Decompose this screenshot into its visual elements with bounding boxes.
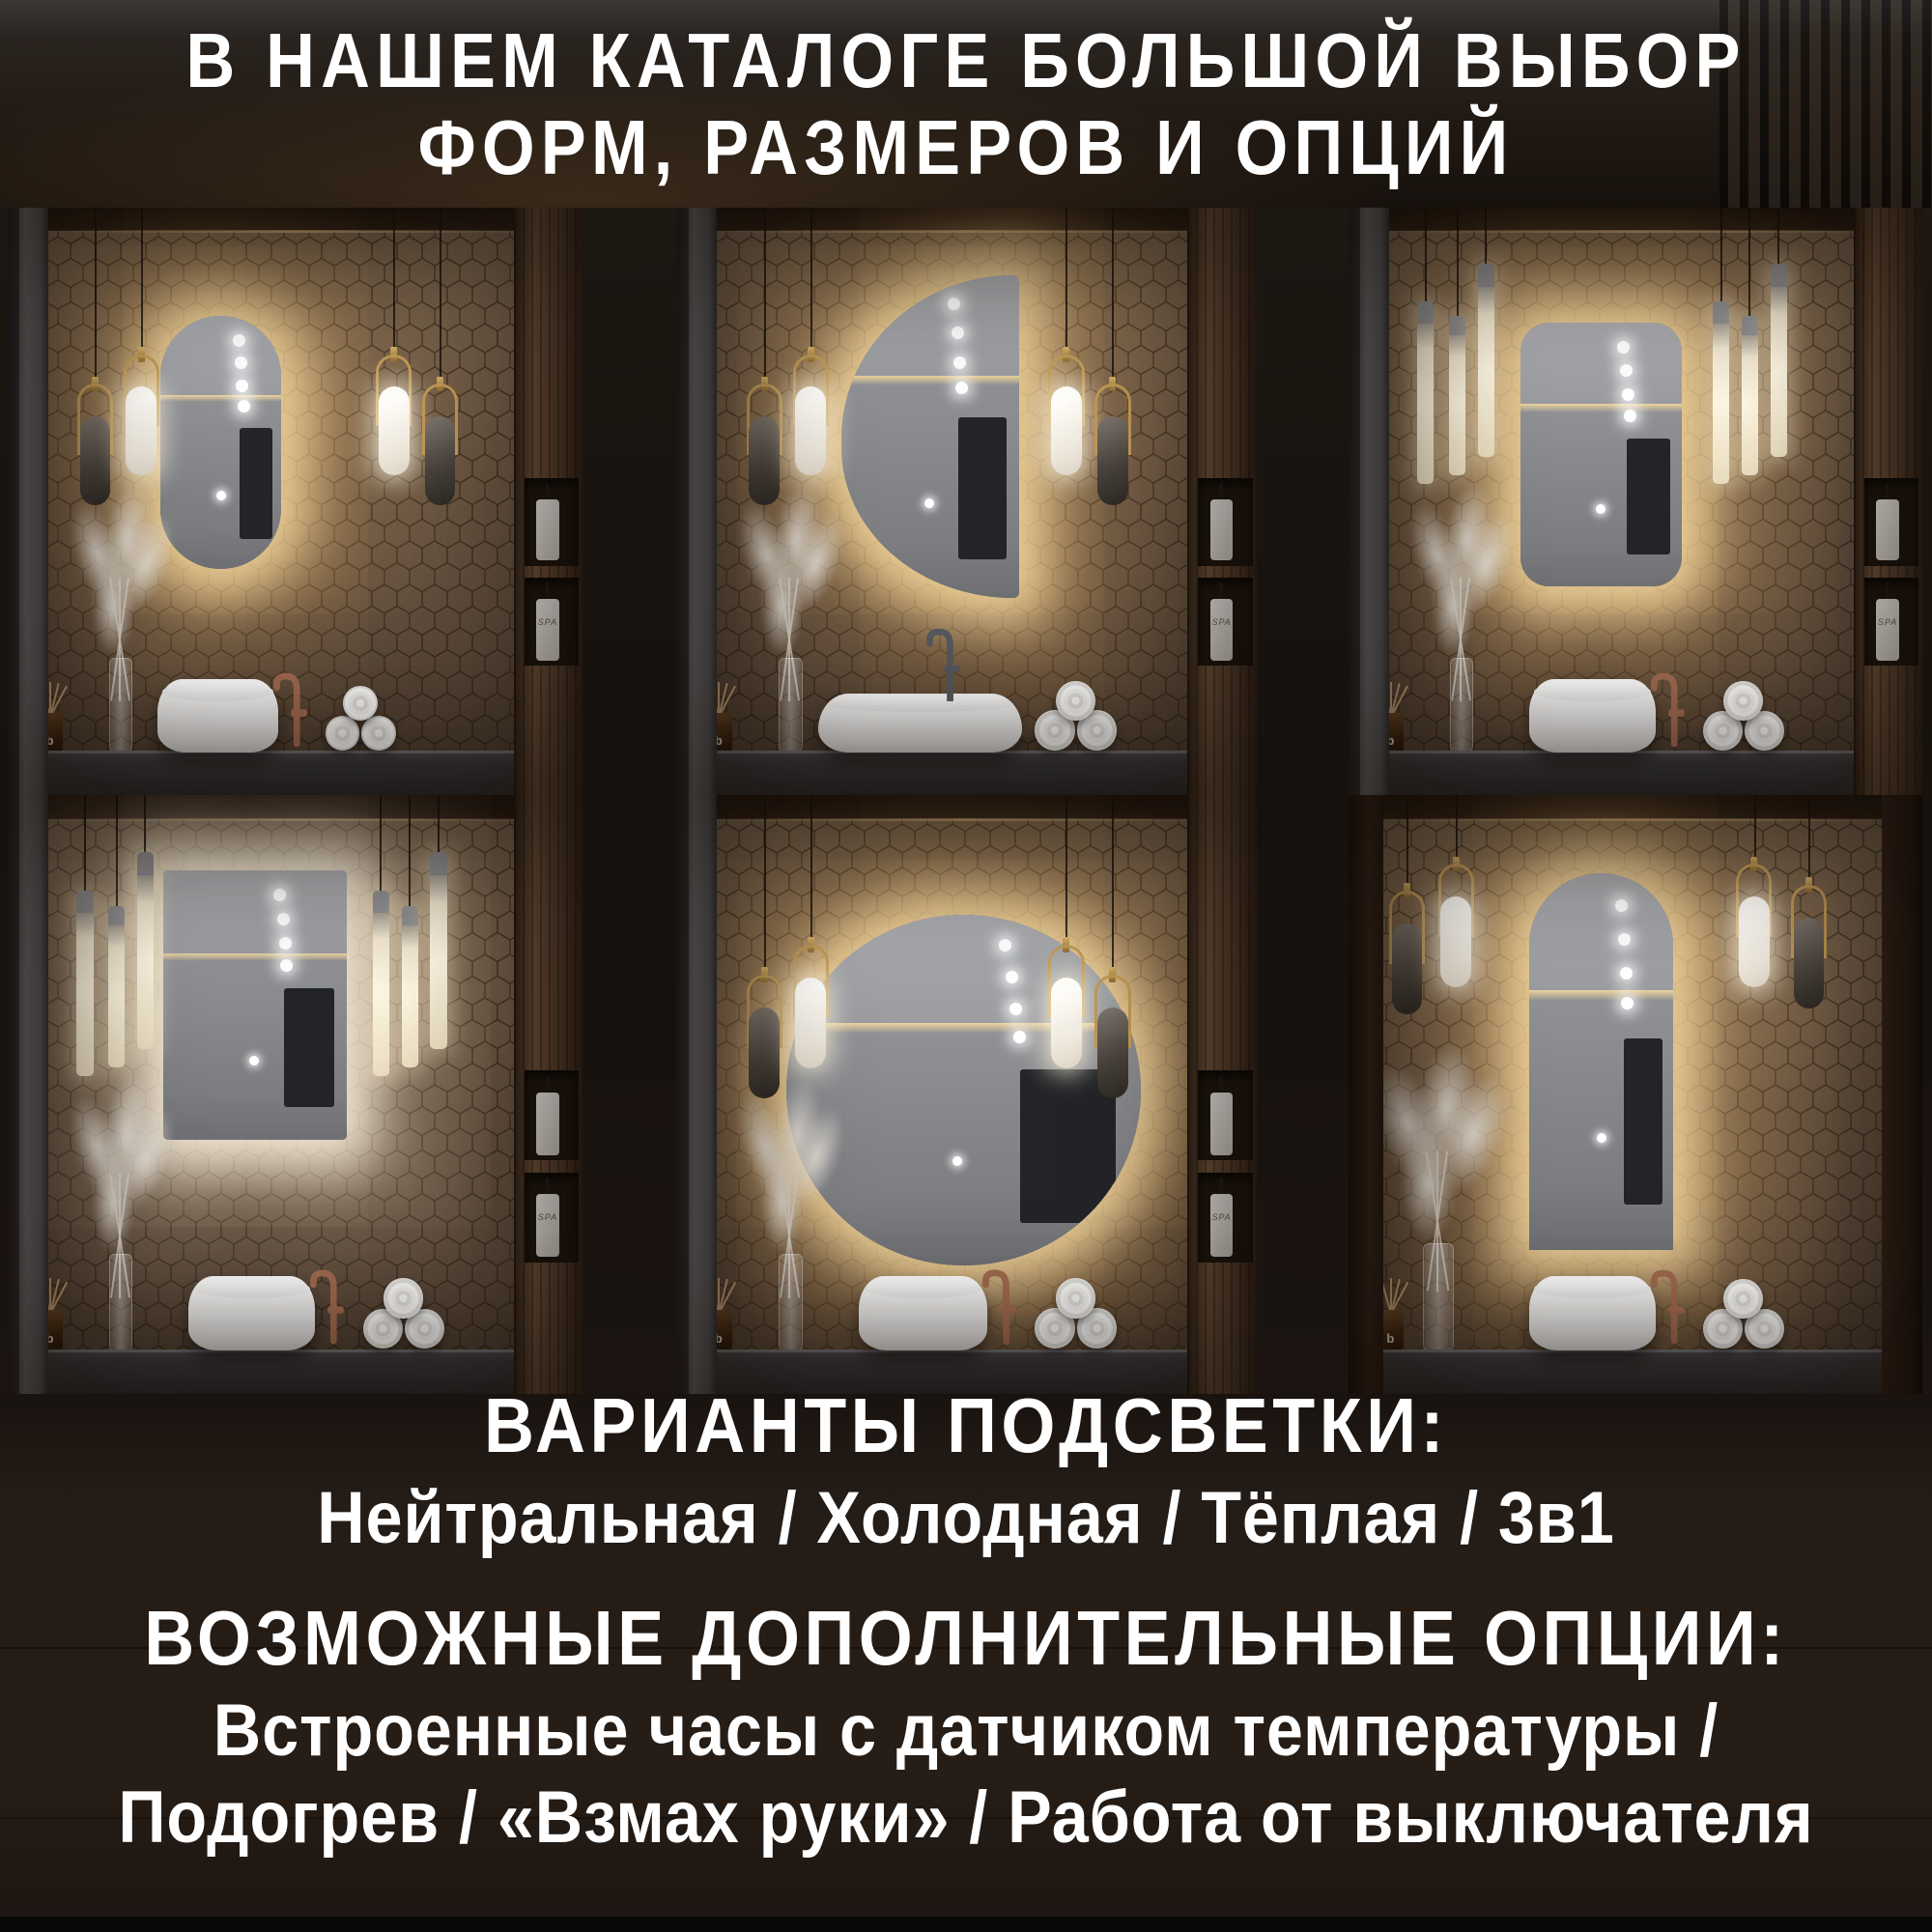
vessel-sink <box>818 694 1021 753</box>
spotlight-reflection-icon <box>1617 341 1630 354</box>
mirror-door-reflection <box>240 428 272 539</box>
countertop <box>37 751 582 795</box>
countertop <box>705 751 1257 795</box>
bottle-label: SPA <box>1210 1212 1234 1222</box>
mirror-ledline-reflection <box>163 953 347 961</box>
cosmetic-bottle <box>536 1093 558 1155</box>
promo-poster: В НАШЕМ КАТАЛОГЕ БОЛЬШОЙ ВЫБОР ФОРМ, РАЗ… <box>0 0 1932 1932</box>
ceiling-soffit <box>8 795 582 819</box>
mirror-door-reflection <box>958 417 1006 559</box>
glass-vase <box>779 658 803 753</box>
glass-vase <box>109 658 133 753</box>
tube-pendant-light <box>402 906 418 1067</box>
ceiling-soffit <box>1349 208 1922 231</box>
cosmetic-bottle: SPA <box>536 1194 558 1257</box>
faucet <box>1647 1252 1690 1350</box>
faucet <box>979 1252 1022 1350</box>
rolled-towels <box>1701 686 1787 751</box>
tube-pendant-light <box>1742 316 1758 474</box>
cosmetic-bottle <box>536 499 558 561</box>
pendant-lamp-white <box>1045 355 1088 478</box>
rolled-towels <box>1034 1283 1121 1349</box>
vessel-sink <box>859 1276 986 1351</box>
spotlight-reflection-icon <box>1622 388 1634 401</box>
cosmetic-bottle <box>1210 1093 1234 1155</box>
ceiling-soffit <box>1349 795 1922 819</box>
mirror-door-reflection <box>1627 439 1670 554</box>
vessel-sink <box>188 1276 315 1351</box>
cosmetic-bottle: SPA <box>1210 1194 1234 1257</box>
rolled-towels <box>1034 686 1121 751</box>
pendant-lamp-white <box>1435 864 1477 989</box>
cosmetic-bottle: SPA <box>1210 599 1234 661</box>
tube-pendant-light <box>1713 301 1729 483</box>
bathroom-photo-oval-pill-mirror: b SPA <box>8 208 582 795</box>
mirror-door-reflection <box>1624 1038 1662 1205</box>
tube-pendant-light <box>108 906 125 1067</box>
spotlight-reflection-icon <box>955 382 968 394</box>
vessel-sink <box>157 679 278 753</box>
bathroom-photo-rounded-rectangle-mirror: b SPA <box>1349 208 1922 795</box>
touch-sensor-icon <box>1597 1133 1606 1143</box>
lighting-options-list: Нейтральная / Холодная / Тёплая / 3в1 <box>97 1476 1835 1560</box>
pampas-plant <box>734 1053 844 1352</box>
spotlight-reflection-icon <box>277 913 290 925</box>
faucet <box>1647 656 1690 753</box>
cosmetic-bottle <box>1210 499 1234 561</box>
extra-options-title: ВОЗМОЖНЫЕ ДОПОЛНИТЕЛЬНЫЕ ОПЦИИ: <box>97 1594 1835 1683</box>
mirror-ceiling-reflection <box>841 275 1018 376</box>
wood-shelf-right: SPA <box>1854 208 1922 795</box>
mirror-ceiling-reflection <box>1529 873 1673 990</box>
cosmetic-bottle <box>1876 499 1898 561</box>
pendant-lamp-white <box>373 355 415 478</box>
stone-wall-left <box>8 208 48 795</box>
bathroom-photo-round-mirror: b SPA <box>676 795 1257 1394</box>
stone-wall-left <box>1349 208 1389 795</box>
led-mirror <box>1529 873 1673 1251</box>
spotlight-reflection-icon <box>280 959 293 972</box>
shelf-niche: SPA <box>1198 578 1252 666</box>
title-line-1: В НАШЕМ КАТАЛОГЕ БОЛЬШОЙ ВЫБОР <box>116 17 1816 104</box>
pendant-lamp-smoky <box>1787 885 1830 1010</box>
bathroom-photo-rectangle-mirror: b SPA <box>8 795 582 1394</box>
mirror-ceiling-reflection <box>1520 323 1681 405</box>
tube-pendant-light <box>1417 301 1434 483</box>
shelf-niche <box>525 478 579 566</box>
pampas-plant <box>1406 460 1515 753</box>
spotlight-reflection-icon <box>1620 967 1633 980</box>
spotlight-reflection-icon <box>1013 1031 1026 1043</box>
wood-shelf-right: SPA <box>1882 795 1922 1394</box>
extra-options-line-1: Встроенные часы с датчиком температуры / <box>97 1689 1835 1773</box>
glass-vase <box>1423 1243 1454 1352</box>
vessel-sink <box>1529 679 1656 753</box>
cosmetic-bottle: SPA <box>536 599 558 661</box>
bathroom-photo-arch-mirror: b SPA <box>1349 795 1922 1394</box>
led-mirror <box>841 275 1018 598</box>
mirror-ledline-reflection <box>160 395 281 403</box>
pendant-lamp-white <box>1045 945 1088 1070</box>
glass-vase <box>109 1254 133 1351</box>
pendant-lamp-white <box>1733 864 1776 989</box>
countertop <box>1378 751 1922 795</box>
stone-wall-left <box>676 208 717 795</box>
mirror-ledline-reflection <box>1529 990 1673 1002</box>
photo-grid: b SPA <box>8 208 1922 1394</box>
wood-shelf-right: SPA <box>514 795 582 1394</box>
bottle-label: SPA <box>1210 617 1234 627</box>
stone-wall-left <box>8 795 48 1394</box>
faucet <box>923 619 966 701</box>
stone-wall-left <box>676 795 717 1394</box>
pampas-plant <box>66 1053 175 1352</box>
faucet <box>306 1252 350 1350</box>
bottle-label: SPA <box>1876 617 1898 627</box>
bottom-edge <box>0 1917 1932 1932</box>
wood-shelf-right: SPA <box>1187 795 1257 1394</box>
shelf-niche <box>525 1070 579 1160</box>
wood-shelf-right: SPA <box>1187 208 1257 795</box>
bottle-label: SPA <box>536 1212 558 1222</box>
faucet <box>270 656 313 753</box>
shelf-niche <box>1864 478 1918 566</box>
led-mirror <box>1520 323 1681 587</box>
cosmetic-bottle: SPA <box>1876 599 1898 661</box>
mirror-ceiling-reflection <box>160 316 281 394</box>
mirror-ceiling-reflection <box>163 870 347 953</box>
glass-vase <box>779 1254 803 1351</box>
tube-pendant-light <box>373 891 389 1076</box>
lighting-options-title: ВАРИАНТЫ ПОДСВЕТКИ: <box>97 1381 1835 1470</box>
vessel-sink <box>1529 1276 1656 1351</box>
shelf-niche <box>1198 478 1252 566</box>
shelf-niche: SPA <box>525 1173 579 1263</box>
tube-pendant-light <box>137 852 154 1050</box>
tube-pendant-light <box>76 891 93 1076</box>
pendant-lamp-smoky <box>1092 975 1134 1100</box>
shelf-niche: SPA <box>1864 578 1918 666</box>
title-line-2: ФОРМ, РАЗМЕРОВ И ОПЦИЙ <box>116 104 1816 191</box>
mirror-ledline-reflection <box>1520 404 1681 412</box>
led-mirror <box>163 870 347 1140</box>
rolled-towels <box>361 1283 447 1349</box>
spotlight-reflection-icon <box>1624 410 1636 422</box>
tube-pendant-light <box>1771 264 1787 458</box>
tube-pendant-light <box>1449 316 1465 474</box>
poster-title: В НАШЕМ КАТАЛОГЕ БОЛЬШОЙ ВЫБОР ФОРМ, РАЗ… <box>116 17 1816 191</box>
mirror-ledline-reflection <box>841 376 1018 385</box>
rolled-towels <box>324 686 398 751</box>
glass-vase <box>1450 658 1474 753</box>
wood-shelf-right: SPA <box>514 208 582 795</box>
spotlight-reflection-icon <box>273 889 286 901</box>
spotlight-reflection-icon <box>953 356 966 369</box>
rolled-towels <box>1701 1283 1787 1349</box>
spotlight-reflection-icon <box>233 334 245 347</box>
bottle-label: SPA <box>536 617 558 627</box>
tube-pendant-light <box>1478 264 1494 458</box>
spotlight-reflection-icon <box>238 400 250 412</box>
bathroom-photo-half-moon-mirror: b SPA <box>676 208 1257 795</box>
extra-options-line-2: Подогрев / «Взмах руки» / Работа от выкл… <box>97 1776 1835 1860</box>
spotlight-reflection-icon <box>1009 1003 1022 1015</box>
pendant-lamp-smoky <box>418 384 461 507</box>
shelf-niche: SPA <box>1198 1173 1252 1263</box>
pendant-lamp-smoky <box>1092 384 1134 507</box>
spotlight-reflection-icon <box>279 937 292 950</box>
shelf-niche <box>1198 1070 1252 1160</box>
shelf-niche: SPA <box>525 578 579 666</box>
stone-wall-left <box>1349 795 1383 1394</box>
mirror-door-reflection <box>284 988 333 1107</box>
pendant-lamp-smoky <box>1386 891 1429 1016</box>
tube-pendant-light <box>430 852 446 1050</box>
